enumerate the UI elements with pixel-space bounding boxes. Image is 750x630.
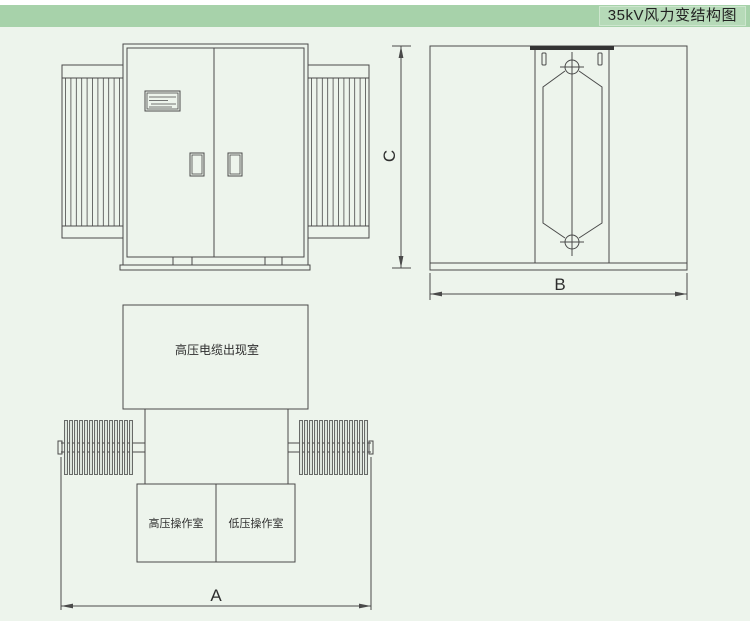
tank-body xyxy=(145,409,288,484)
base-plate xyxy=(120,265,310,270)
front-view xyxy=(62,44,369,270)
dimension-c: C xyxy=(380,46,411,268)
radiator-fins xyxy=(66,78,120,226)
side-body xyxy=(430,46,687,263)
cable-room xyxy=(123,305,308,409)
plan-view: 高压电缆出现室 高压操作室 低压操作室 xyxy=(58,305,373,610)
dimension-b: B xyxy=(430,273,687,300)
structure-diagram: C B 高压电缆出现室 高压操作室 低压操作室 xyxy=(0,27,750,621)
dimension-a-label: A xyxy=(210,586,222,605)
base-tick-marks xyxy=(173,257,282,265)
center-hatch xyxy=(543,52,602,256)
side-base-plate xyxy=(430,263,687,270)
radiator-fins xyxy=(299,420,369,475)
radiator-fins xyxy=(312,78,366,226)
left-door-handle xyxy=(190,153,204,176)
top-bar xyxy=(530,46,614,50)
front-left-radiator xyxy=(62,65,123,238)
plan-left-radiator xyxy=(58,420,145,475)
hv-operation-room-label: 高压操作室 xyxy=(149,516,204,530)
page-header: 35kV风力变结构图 xyxy=(0,5,750,27)
dimension-c-label: C xyxy=(380,150,399,162)
side-view: C B xyxy=(380,46,687,300)
dimension-b-label: B xyxy=(554,275,565,294)
front-cabinet xyxy=(120,44,310,270)
radiator-fins xyxy=(64,420,134,475)
lv-operation-room-label: 低压操作室 xyxy=(229,516,284,530)
operation-rooms: 高压操作室 低压操作室 xyxy=(137,484,295,562)
plan-right-radiator xyxy=(288,420,373,475)
nameplate xyxy=(145,91,180,111)
drawing-canvas: C B 高压电缆出现室 高压操作室 低压操作室 xyxy=(0,27,750,621)
front-right-radiator xyxy=(308,65,369,238)
cable-room-label: 高压电缆出现室 xyxy=(175,342,259,357)
page-title: 35kV风力变结构图 xyxy=(599,6,746,26)
right-door-handle xyxy=(228,153,242,176)
